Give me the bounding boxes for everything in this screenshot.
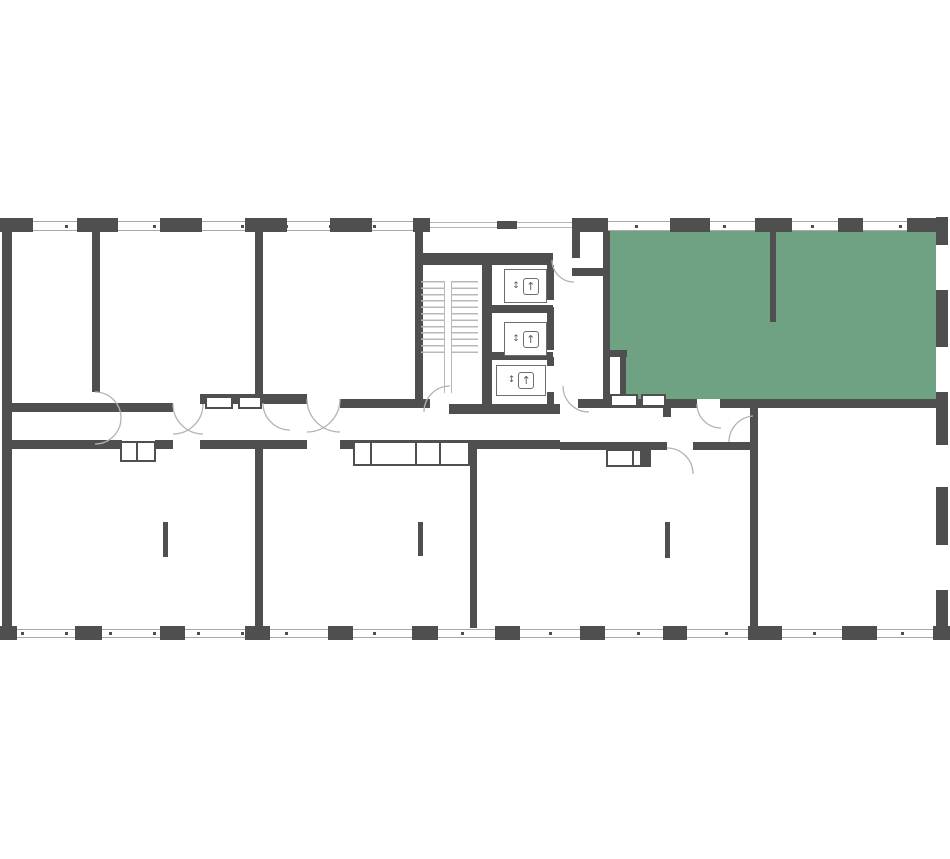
wall-stub (641, 442, 651, 467)
wall-pier (245, 218, 287, 232)
wall-elevator-divider (482, 305, 553, 313)
wall-dash (497, 221, 517, 229)
sill-cabinet (610, 394, 638, 407)
wall-lobby-left (572, 219, 580, 258)
wall-pier (330, 218, 372, 232)
wall-pier (936, 217, 948, 245)
wall-corridor-lower (693, 442, 758, 450)
elevator-up-icon: ↑ (518, 372, 534, 389)
wall-corridor-lower (12, 440, 122, 449)
wall-pier (580, 626, 605, 640)
elevator-3: ↕ ↑ (496, 365, 546, 396)
wall-left-exterior (2, 219, 12, 640)
wall-pier (75, 626, 102, 640)
cabinet (120, 441, 156, 462)
wall-pier (328, 626, 353, 640)
wall-pier (663, 626, 687, 640)
wall-notch-top (603, 350, 627, 357)
wall-notch-left (603, 357, 610, 399)
door-leaf (665, 522, 670, 558)
wall-pier (838, 218, 863, 232)
staircase-rail (444, 281, 452, 393)
floor-plan: ↕ ↑ ↕ ↑ ↕ ↑ (0, 0, 950, 859)
wall-pier (77, 218, 118, 232)
wall-elevator-shaft (482, 313, 492, 353)
wall-notch-right (620, 357, 626, 395)
wardrobe (238, 396, 262, 409)
wall-elevator-shaft (547, 307, 554, 350)
wall-pier (160, 218, 202, 232)
elevator-updown-icon: ↕ (512, 335, 520, 344)
wall-stair-top (415, 253, 553, 265)
door-leaf (418, 522, 423, 556)
door-leaf (163, 522, 168, 557)
elevator-up-icon: ↑ (523, 331, 539, 348)
elevator-updown-icon: ↕ (508, 376, 516, 385)
wall-pier (748, 626, 782, 640)
wall-apartment-left (603, 231, 610, 352)
wall-elevator-shaft (482, 357, 492, 405)
wall-pier (936, 290, 948, 347)
wardrobe (205, 396, 233, 409)
wall-pier (755, 218, 792, 232)
elevator-updown-icon: ↕ (512, 282, 520, 291)
elevator-1: ↕ ↑ (504, 269, 547, 303)
wall-corridor-upper (340, 399, 430, 408)
wall-elevator-shaft (547, 265, 554, 300)
cabinet (606, 449, 642, 467)
wall-pier (670, 218, 710, 232)
wall-corridor-upper (449, 404, 560, 414)
cabinet (353, 441, 470, 466)
sill-cabinet (641, 394, 666, 407)
wall-room-divider (92, 231, 100, 392)
wall-corridor-lower (155, 440, 173, 449)
shaft-notch (610, 357, 620, 395)
wall-apartment-partition (770, 231, 776, 322)
wall-pier (245, 626, 270, 640)
wall-pier (412, 626, 438, 640)
wall-elevator-shaft (482, 265, 492, 306)
wall-stub (663, 407, 671, 417)
wall-room-divider (750, 405, 758, 628)
elevator-up-icon: ↑ (523, 278, 539, 295)
wall-corridor-upper (12, 403, 173, 412)
wall-pier (495, 626, 520, 640)
window-band-bottom (2, 629, 948, 638)
wall-corridor-lower (470, 440, 560, 449)
door-swing-arcs (0, 0, 950, 859)
wall-room-divider (470, 443, 477, 628)
wall-room-divider (255, 443, 263, 628)
wall-corridor-lower (200, 440, 307, 449)
wall-room-divider (255, 231, 263, 403)
wall-pier (160, 626, 185, 640)
wall-pier (413, 218, 430, 232)
wall-pier (936, 487, 948, 545)
wall-pier (936, 590, 948, 640)
wall-pier (842, 626, 877, 640)
wall-pier (936, 392, 948, 445)
elevator-2: ↕ ↑ (504, 322, 547, 356)
